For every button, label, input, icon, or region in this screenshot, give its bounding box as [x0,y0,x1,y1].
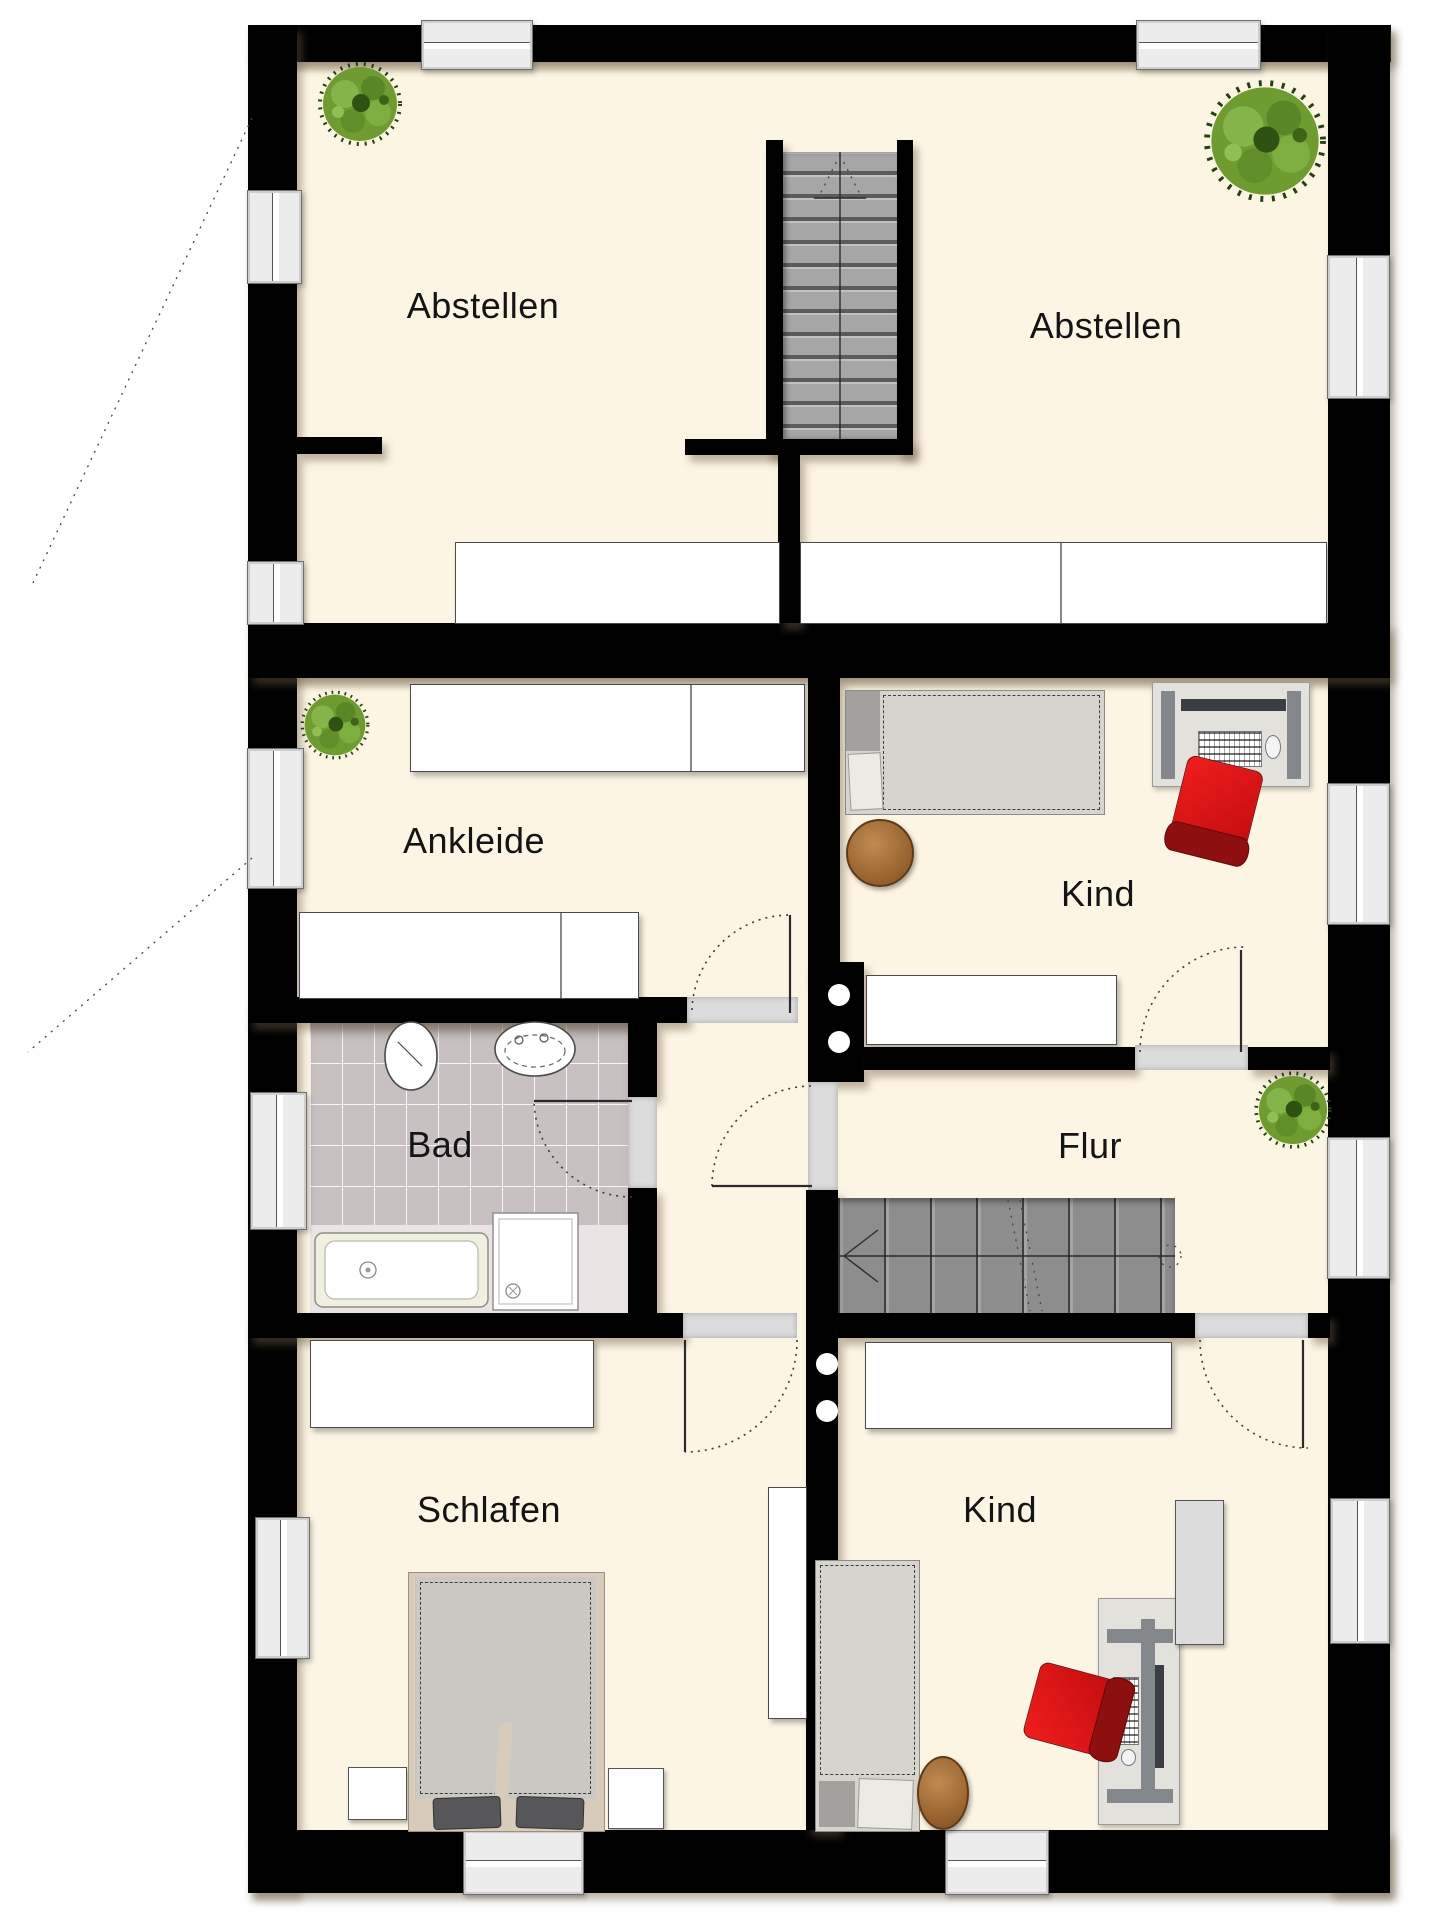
toilet-icon [385,1022,437,1090]
wall-marker-dots [816,984,850,1422]
plant-icon [1256,1073,1330,1147]
reference-dashed-lines [28,118,252,1052]
door-swing-icon [534,915,1308,1452]
stair-down-arrow [838,1200,1181,1311]
floor-plan-canvas: Abstellen Abstellen Ankleide Kind Bad Fl… [0,0,1453,1919]
plant-icon [320,64,400,144]
plant-icon [1207,83,1323,199]
sink-icon [495,1022,575,1076]
bathtub-icon [315,1233,488,1307]
plan-vector-overlay [0,0,1453,1919]
stair-up-arrow [814,152,866,439]
shower-icon [493,1213,578,1310]
plant-icon [302,692,368,758]
